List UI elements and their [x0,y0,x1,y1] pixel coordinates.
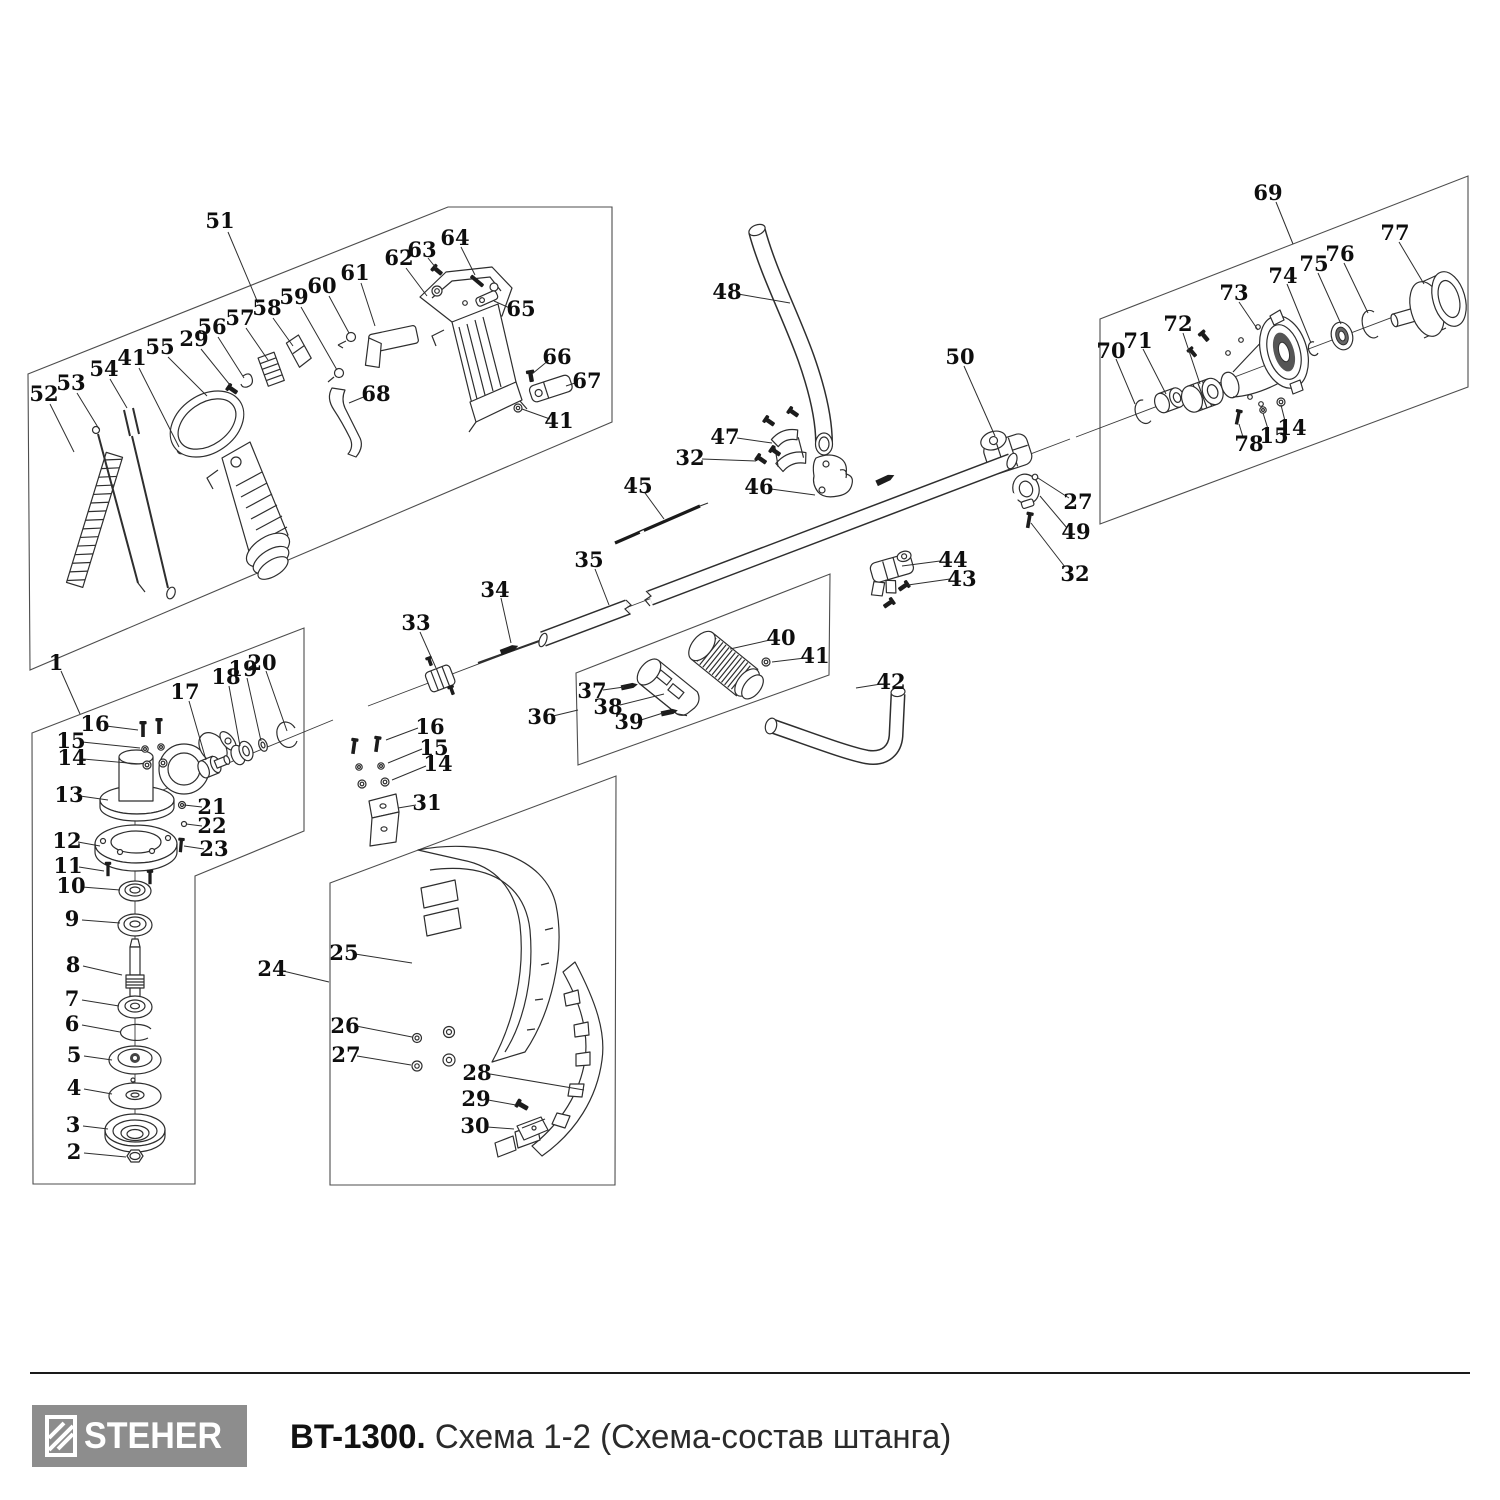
part-label-5: 5 [67,1042,82,1067]
part-label-14: 14 [57,745,86,770]
part-label-17: 17 [170,679,199,704]
leader-line-4 [84,1089,112,1094]
washer-4-drawing [109,1083,161,1109]
leader-line-19 [247,678,261,741]
leader-line-35 [595,569,609,605]
part-label-40: 40 [766,625,795,650]
model-number: BT-1300. [290,1418,426,1456]
part-label-27: 27 [331,1042,360,1067]
leader-line-75 [1318,273,1341,324]
leader-line-20 [266,671,287,731]
part-label-61: 61 [340,260,369,285]
leader-line-73 [1239,302,1258,330]
part-label-42: 42 [876,669,905,694]
leader-line-10 [82,887,120,890]
leader-line-53 [77,393,99,429]
gearhead-screws-21-22-23 [177,802,186,853]
part-label-52: 52 [29,381,58,406]
leader-line-34 [501,598,511,643]
leader-line-6 [82,1025,120,1032]
leader-line-30 [487,1127,514,1129]
leader-line-39 [641,713,663,720]
clamp-ring-49-drawing [1009,471,1044,510]
part-label-4: 4 [67,1075,82,1100]
part-label-30: 30 [460,1113,489,1138]
leader-line-70 [1116,359,1135,404]
bearing-10-drawing [119,881,151,901]
leader-line-14 [392,766,426,780]
part-label-56: 56 [197,314,226,339]
leader-line-62 [406,268,427,296]
leader-line-77 [1399,242,1424,284]
bearing-9-drawing [118,914,152,936]
leader-line-55 [168,357,207,396]
leader-line-61 [361,283,375,326]
clutch-drum-77-drawing [1390,268,1472,341]
part-label-75: 75 [1299,251,1328,276]
leader-line-25 [355,954,412,963]
bearing-7-drawing [118,996,152,1018]
part-label-12: 12 [52,828,81,853]
part-label-28: 28 [462,1060,491,1085]
part-label-39: 39 [614,709,643,734]
leader-line-28 [490,1074,584,1090]
part-label-69: 69 [1253,180,1282,205]
ring-60-drawing [338,333,356,349]
bell-housing-73-drawing [1218,310,1316,400]
leader-line-24 [283,971,329,982]
bracket-46-drawing [813,455,852,497]
part-label-36: 36 [527,704,556,729]
cup-3-drawing [105,1114,165,1152]
leader-line-56 [218,337,244,378]
leader-line-47 [737,438,772,443]
part-label-70: 70 [1096,338,1125,363]
part-label-14: 14 [423,751,452,776]
handlebar-48-drawing [747,222,832,455]
part-label-65: 65 [506,296,535,321]
circlip-6-drawing [121,1024,151,1040]
part-label-47: 47 [710,424,739,449]
cable-54-drawing [124,408,177,600]
part-label-68: 68 [361,381,390,406]
part-label-24: 24 [257,956,286,981]
part-label-20: 20 [247,650,276,675]
part-label-72: 72 [1163,311,1192,336]
bracket-31-drawing [369,794,399,846]
part-label-14: 14 [1277,415,1306,440]
part-label-9: 9 [65,906,80,931]
part-label-22: 22 [197,813,226,838]
part-label-53: 53 [56,370,85,395]
guard-25-drawing [418,846,559,1062]
part-label-51: 51 [205,208,234,233]
caption-text: Схема 1-2 (Схема-состав штанга) [435,1418,951,1456]
leader-line-52 [50,404,74,452]
trigger-68-drawing [329,388,361,457]
leader-line-9 [82,920,120,923]
part-label-46: 46 [744,474,773,499]
part-label-63: 63 [407,237,436,262]
part-label-32: 32 [675,445,704,470]
leader-line-5 [84,1056,112,1060]
leader-line-54 [110,379,127,408]
part-label-3: 3 [66,1112,81,1137]
brand-name: STEHER [84,1415,222,1457]
leader-line-72 [1183,333,1200,384]
leader-line-76 [1344,263,1368,313]
part-label-71: 71 [1123,328,1152,353]
part-label-64: 64 [440,225,469,250]
part-label-66: 66 [542,344,571,369]
part-label-33: 33 [401,610,430,635]
steher-logo: STEHER [32,1405,247,1467]
part-label-67: 67 [572,368,601,393]
parts-diagram-page: 5152535441552956575859606162636465666768… [0,0,1500,1500]
part-label-26: 26 [330,1013,359,1038]
part-label-49: 49 [1061,519,1090,544]
clamp-67-drawing [528,374,573,403]
part-label-31: 31 [412,790,441,815]
part-label-50: 50 [945,344,974,369]
leader-line-27 [357,1056,411,1065]
lever-61-drawing [359,325,422,370]
leader-line-15 [82,742,140,748]
spring-52-drawing [67,452,123,587]
leader-line-29 [201,349,230,385]
part-label-73: 73 [1219,280,1248,305]
leader-line-3 [83,1126,108,1129]
part-label-7: 7 [65,986,80,1011]
part-label-1: 1 [49,650,64,675]
part-label-2: 2 [67,1139,82,1164]
part-label-29: 29 [461,1086,490,1111]
part-label-8: 8 [66,952,81,977]
leader-line-58 [273,318,293,346]
circlip-20-drawing [277,722,297,747]
part-label-41: 41 [117,345,146,370]
grip-nut-41c [762,658,770,666]
exploded-parts-diagram: 5152535441552956575859606162636465666768… [0,0,1500,1500]
leader-line-32 [702,459,756,461]
steher-logo-mark [44,1414,78,1458]
clamp-44-drawing [862,550,920,611]
leader-line-8 [83,966,122,975]
part-label-74: 74 [1268,263,1297,288]
part-label-57: 57 [225,305,254,330]
mid-bolt-kit-14-15-16 [349,736,389,788]
part-label-41: 41 [544,408,573,433]
part-label-48: 48 [712,279,741,304]
circlip-76-drawing [1362,310,1378,337]
switch-58-drawing [285,333,313,368]
part-label-41: 41 [800,643,829,668]
part-label-27: 27 [1063,489,1092,514]
part-label-25: 25 [329,940,358,965]
rod-45-drawing [615,503,708,543]
leader-line-16 [106,726,138,730]
leader-line-11 [79,867,104,871]
leader-line-40 [730,640,770,649]
leader-line-15 [388,749,422,763]
leader-line-29 [488,1100,516,1105]
leader-line-69 [1276,202,1293,244]
part-label-54: 54 [89,356,118,381]
nut-2-drawing [127,1150,143,1162]
leader-line-16 [386,728,418,740]
part-label-77: 77 [1380,220,1409,245]
leader-line-33 [420,632,436,668]
leader-line-41 [139,368,179,447]
loop-handle-55-drawing [158,377,296,583]
spring-57-drawing [258,352,284,386]
diagram-caption: BT-1300. Схема 1-2 (Схема-состав штанга) [290,1418,951,1457]
part-label-55: 55 [145,334,174,359]
part-label-10: 10 [56,873,85,898]
part-label-6: 6 [65,1011,80,1036]
leader-line-2 [84,1153,126,1157]
leader-line-60 [329,296,349,333]
part-label-45: 45 [623,473,652,498]
leader-line-50 [964,366,995,436]
trigger-housing-62-drawing [420,267,527,432]
bearing-75-drawing [1328,320,1356,353]
part-label-76: 76 [1325,241,1354,266]
part-label-59: 59 [279,284,308,309]
part-label-58: 58 [252,295,281,320]
leader-line-57 [246,328,268,360]
part-label-32: 32 [1060,561,1089,586]
ring-59-drawing [328,369,344,383]
part-label-23: 23 [199,836,228,861]
leader-line-36 [553,710,578,716]
leader-line-38 [620,694,664,705]
leader-line-46 [771,489,815,495]
part-label-60: 60 [307,273,336,298]
leader-line-7 [82,1000,119,1006]
footer-divider [30,1372,1470,1374]
part-label-34: 34 [480,577,509,602]
drum-72-drawing [1178,375,1227,415]
leader-line-26 [356,1026,412,1037]
nut-41b-drawing [514,404,522,412]
leader-line-1 [61,671,80,714]
part-label-43: 43 [947,566,976,591]
leader-line-43 [908,579,950,585]
clamp-33-drawing [424,656,456,696]
part-label-13: 13 [54,782,83,807]
part-label-35: 35 [574,547,603,572]
barrier-bar-42-drawing [764,687,906,758]
leader-line-71 [1143,349,1166,394]
